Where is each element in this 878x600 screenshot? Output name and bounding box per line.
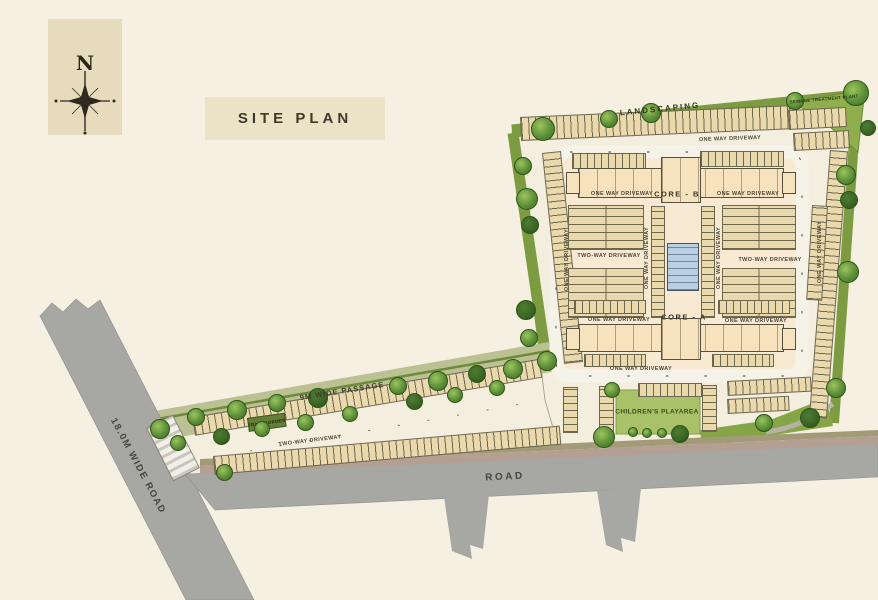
road-stub-a [444,494,489,559]
parking-stalls [788,107,847,130]
driveway-label: TWO-WAY DRIVEWAY [738,257,801,263]
core-a-tower [661,318,701,360]
driveway-label: ONE WAY DRIVEWAY [591,191,653,197]
driveway-label: ONE WAY DRIVEWAY [817,221,823,283]
parking-stalls [568,205,644,250]
tree-icon [213,428,230,445]
title-panel: SITE PLAN [205,97,385,140]
tree-icon [840,191,858,209]
tree-icon [800,408,820,428]
parking-stalls [793,130,850,151]
driveway-label: ONE WAY DRIVEWAY [717,191,779,197]
tree-icon [826,378,846,398]
tree-icon [671,425,689,443]
tree-icon [514,157,532,175]
driveway-label: ONE WAY DRIVEWAY [564,229,570,291]
parking-stalls [712,354,774,367]
tree-icon [406,393,423,410]
tree-icon [389,377,407,395]
tree-icon [150,419,170,439]
parking-stalls [574,300,646,314]
compass-north-label: N [76,51,94,75]
core-b-endcap [566,172,580,194]
parking-stalls [722,205,796,250]
water-tank [667,243,699,291]
tree-icon [342,406,358,422]
driveway-label: ONE WAY DRIVEWAY [588,317,650,323]
parking-stalls [701,206,715,318]
tree-icon [468,365,486,383]
tree-icon [755,414,773,432]
tree-icon [520,329,538,347]
tree-icon [860,120,876,136]
tree-icon [170,435,186,451]
parking-stalls [563,387,578,433]
parking-stalls [718,300,790,314]
driveway-label: ONE WAY DRIVEWAY [725,318,787,324]
tree-icon [227,400,247,420]
compass-rose-icon [48,19,122,135]
core-b-label: CORE - B [654,190,700,199]
core-a-endcap [566,328,580,350]
tree-icon [297,414,314,431]
tree-icon [593,426,615,448]
parking-stalls [702,385,717,432]
driveway-label: ONE WAY DRIVEWAY [716,227,722,289]
driveway-label: TWO-WAY DRIVEWAY [577,253,640,259]
parking-stalls [700,151,784,167]
tree-icon [516,300,536,320]
bush-icon [642,428,652,438]
core-b-endcap [782,172,796,194]
tree-icon [489,380,505,396]
tree-icon [837,261,859,283]
tree-icon [836,165,856,185]
core-a-label: CORE - A [661,313,706,322]
tree-icon [254,421,270,437]
compass-panel: N [48,19,122,135]
tree-icon [447,387,463,403]
tree-icon [268,394,286,412]
site-plan-canvas: N SITE PLAN [0,0,878,600]
driveway-label: ONE WAY DRIVEWAY [610,366,672,372]
parking-stalls [572,153,646,169]
tree-icon [216,464,233,481]
road-label: ROAD [485,470,525,483]
tree-icon [187,408,205,426]
tree-icon [531,117,555,141]
tree-icon [503,359,523,379]
tree-icon [537,351,557,371]
road-stub-b [597,488,641,552]
page-title: SITE PLAN [238,110,352,127]
core-a-endcap [782,328,796,350]
driveway-label: ONE WAY DRIVEWAY [644,227,650,289]
tree-icon [428,371,448,391]
bush-icon [657,428,667,438]
tree-icon [521,216,539,234]
tree-icon [600,110,618,128]
playarea-label: CHILDREN'S PLAYAREA [615,409,698,416]
tree-icon [604,382,620,398]
parking-stalls [638,383,702,397]
tree-icon [516,188,538,210]
parking-stalls [651,206,665,318]
bush-icon [628,427,638,437]
